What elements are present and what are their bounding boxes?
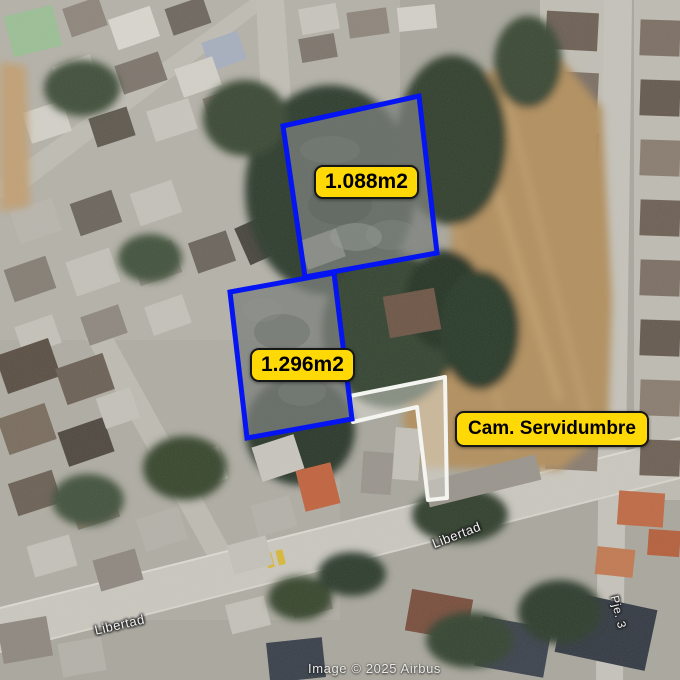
map-canvas: 1.088m2 1.296m2 Cam. Servidumbre Liberta… bbox=[0, 0, 680, 680]
parcel-area-label-1088: 1.088m2 bbox=[314, 165, 419, 199]
annotation-overlay bbox=[0, 0, 680, 680]
imagery-attribution: Image © 2025 Airbus bbox=[308, 661, 441, 676]
easement-label: Cam. Servidumbre bbox=[455, 411, 649, 447]
easement-path-outline bbox=[350, 377, 447, 500]
parcel-area-label-1296: 1.296m2 bbox=[250, 348, 355, 382]
